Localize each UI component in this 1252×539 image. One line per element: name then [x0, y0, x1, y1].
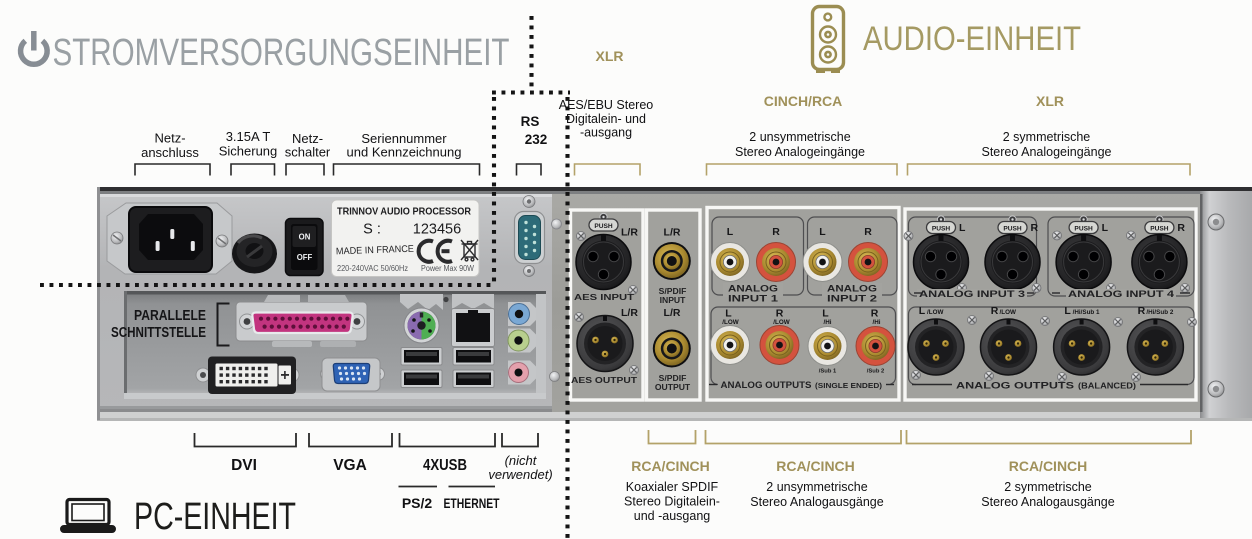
svg-text:/Hi/Sub 2: /Hi/Sub 2	[1146, 309, 1173, 316]
svg-text:PUSH: PUSH	[1150, 226, 1169, 233]
svg-text:2 unsymmetrische: 2 unsymmetrische	[749, 130, 850, 144]
svg-text:anschluss: anschluss	[141, 145, 199, 160]
svg-text:R: R	[1177, 222, 1185, 234]
svg-text:verwendet): verwendet)	[488, 467, 552, 482]
svg-text:ANALOG INPUT 3: ANALOG INPUT 3	[919, 289, 1025, 299]
svg-text:2 symmetrische: 2 symmetrische	[1004, 480, 1092, 494]
svg-text:4XUSB: 4XUSB	[423, 457, 467, 474]
svg-text:Koaxialer SPDIF: Koaxialer SPDIF	[626, 480, 719, 494]
svg-text:STROMVERSORGUNGSEINHEIT: STROMVERSORGUNGSEINHEIT	[53, 32, 510, 74]
svg-text:(nicht: (nicht	[505, 453, 538, 468]
svg-text:Netz-: Netz-	[154, 131, 185, 146]
svg-text:XLR: XLR	[596, 48, 624, 64]
svg-text:(BALANCED): (BALANCED)	[1078, 382, 1136, 391]
svg-text:DVI: DVI	[231, 457, 257, 474]
svg-text:L: L	[822, 308, 829, 320]
svg-text:/Hi: /Hi	[872, 319, 880, 326]
svg-text:Stereo Analogausgänge: Stereo Analogausgänge	[750, 495, 883, 509]
svg-text:/Hi/Sub 1: /Hi/Sub 1	[1073, 309, 1100, 316]
svg-text:/Sub 1: /Sub 1	[819, 369, 837, 375]
svg-text:L: L	[919, 305, 926, 317]
svg-text:ETHERNET: ETHERNET	[444, 495, 500, 511]
svg-text:Stereo Digitalein-: Stereo Digitalein-	[624, 494, 720, 508]
svg-text:ANALOG INPUT 4: ANALOG INPUT 4	[1068, 289, 1175, 299]
svg-text:-ausgang: -ausgang	[580, 126, 632, 140]
svg-text:/LOW: /LOW	[773, 319, 789, 326]
svg-text:RCA/CINCH: RCA/CINCH	[776, 458, 855, 474]
svg-text:und Kennzeichnung: und Kennzeichnung	[347, 145, 462, 160]
svg-text:PC-EINHEIT: PC-EINHEIT	[134, 496, 296, 538]
svg-text:ON: ON	[299, 233, 311, 242]
svg-text:Sicherung: Sicherung	[219, 144, 278, 159]
svg-text:AES INPUT: AES INPUT	[574, 292, 635, 302]
svg-text:AUDIO-EINHEIT: AUDIO-EINHEIT	[863, 20, 1081, 58]
svg-text:L: L	[725, 308, 732, 320]
svg-text:Stereo Analogeingänge: Stereo Analogeingänge	[982, 145, 1112, 159]
svg-text:(SINGLE ENDED): (SINGLE ENDED)	[815, 381, 882, 390]
svg-text:/LOW: /LOW	[1000, 309, 1016, 316]
svg-text:PUSH: PUSH	[1003, 226, 1022, 233]
svg-text:R: R	[772, 226, 780, 238]
svg-text:OUTPUT: OUTPUT	[655, 382, 691, 392]
svg-text:2 symmetrische: 2 symmetrische	[1003, 130, 1091, 144]
svg-text:Digitalein- und: Digitalein- und	[566, 112, 646, 126]
svg-text:RS: RS	[521, 114, 540, 129]
svg-text:ANALOG: ANALOG	[827, 284, 877, 294]
svg-text:L: L	[1102, 222, 1109, 234]
svg-text:/LOW: /LOW	[722, 319, 738, 326]
svg-text:OFF: OFF	[297, 253, 313, 262]
svg-text:L: L	[959, 222, 966, 234]
svg-text:ANALOG: ANALOG	[728, 284, 778, 294]
svg-text:SCHNITTSTELLE: SCHNITTSTELLE	[111, 325, 206, 341]
svg-text:INPUT 2: INPUT 2	[827, 294, 877, 304]
svg-text:PUSH: PUSH	[932, 226, 951, 233]
svg-text:RCA/CINCH: RCA/CINCH	[631, 458, 710, 474]
svg-text:PS/2: PS/2	[402, 495, 433, 511]
svg-text:AES OUTPUT: AES OUTPUT	[571, 375, 638, 385]
svg-text:XLR: XLR	[1036, 93, 1064, 109]
svg-text:ANALOG OUTPUTS: ANALOG OUTPUTS	[956, 381, 1075, 392]
svg-text:220-240VAC 50/60Hz: 220-240VAC 50/60Hz	[337, 264, 408, 273]
svg-text:R: R	[1031, 222, 1039, 234]
svg-text:INPUT 1: INPUT 1	[728, 294, 778, 304]
svg-text:L/R: L/R	[621, 307, 638, 319]
svg-text:123456: 123456	[413, 222, 461, 238]
svg-text:PARALLELE: PARALLELE	[134, 308, 206, 324]
svg-text:R: R	[864, 226, 872, 238]
svg-text:INPUT: INPUT	[660, 295, 687, 305]
svg-text:RCA/CINCH: RCA/CINCH	[1009, 458, 1088, 474]
svg-text:L/R: L/R	[621, 227, 638, 239]
svg-text:R: R	[776, 308, 784, 320]
svg-text:und -ausgang: und -ausgang	[634, 509, 711, 523]
svg-text:232: 232	[525, 132, 548, 147]
svg-text:ANALOG OUTPUTS: ANALOG OUTPUTS	[721, 380, 812, 390]
svg-text:3.15A T: 3.15A T	[226, 129, 271, 144]
svg-text:S :: S :	[363, 222, 381, 238]
svg-text:TRINNOV AUDIO PROCESSOR: TRINNOV AUDIO PROCESSOR	[337, 207, 471, 218]
svg-text:L/R: L/R	[664, 307, 681, 319]
svg-text:/LOW: /LOW	[927, 309, 943, 316]
svg-text:L: L	[1064, 305, 1071, 317]
svg-text:schalter: schalter	[285, 145, 331, 160]
svg-text:CINCH/RCA: CINCH/RCA	[764, 93, 843, 109]
svg-text:AES/EBU Stereo: AES/EBU Stereo	[559, 98, 654, 112]
svg-text:R: R	[871, 308, 879, 320]
svg-text:Stereo Analogausgänge: Stereo Analogausgänge	[981, 495, 1114, 509]
svg-text:VGA: VGA	[333, 457, 367, 474]
svg-text:R: R	[1138, 305, 1146, 317]
svg-text:L: L	[727, 226, 734, 238]
svg-text:R: R	[991, 305, 999, 317]
svg-text:PUSH: PUSH	[594, 223, 613, 230]
svg-text:Power Max 90W: Power Max 90W	[421, 264, 475, 273]
svg-text:/Hi: /Hi	[823, 319, 831, 326]
svg-text:Stereo Analogeingänge: Stereo Analogeingänge	[735, 145, 865, 159]
svg-text:L: L	[819, 226, 826, 238]
svg-text:L/R: L/R	[664, 227, 681, 239]
svg-text:2 unsymmetrische: 2 unsymmetrische	[766, 480, 867, 494]
svg-text:/Sub 2: /Sub 2	[867, 369, 884, 375]
svg-text:PUSH: PUSH	[1074, 226, 1093, 233]
